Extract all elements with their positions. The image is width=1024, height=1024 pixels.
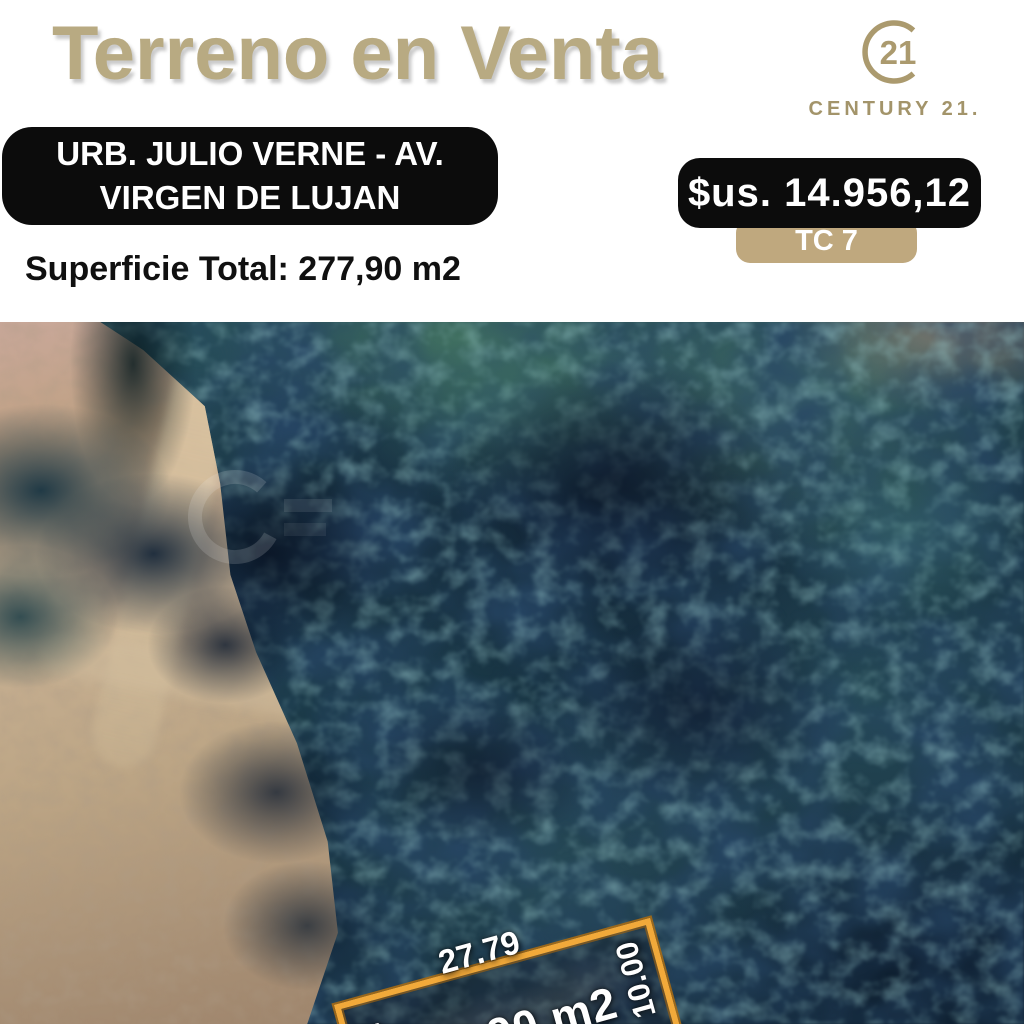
century21-seal-icon: 21 <box>852 14 938 92</box>
surface-total-label: Superficie Total: 277,90 m2 <box>25 250 461 289</box>
location-line1: URB. JULIO VERNE - AV. <box>56 132 444 176</box>
location-badge: URB. JULIO VERNE - AV. VIRGEN DE LUJAN <box>2 127 498 225</box>
satellite-map: 27.79 27.79 10.00 10.00 277,90 m2 <box>0 322 1024 1024</box>
flyer-canvas: Terreno en Venta 21 CENTURY 21. URB. JUL… <box>0 0 1024 1024</box>
parcel-area-label: 277,90 m2 <box>393 977 623 1024</box>
parcel-width-left-label: 10.00 <box>353 1018 408 1024</box>
century21-logo: 21 CENTURY 21. <box>795 14 995 121</box>
flyer-title: Terreno en Venta <box>52 10 663 97</box>
century21-wordmark: CENTURY 21. <box>795 98 995 121</box>
century21-watermark-icon <box>180 457 350 587</box>
price-badge: $us. 14.956,12 <box>678 158 981 228</box>
location-line2: VIRGEN DE LUJAN <box>100 176 401 220</box>
tree-line <box>0 322 1024 1024</box>
seal-number: 21 <box>880 34 917 71</box>
